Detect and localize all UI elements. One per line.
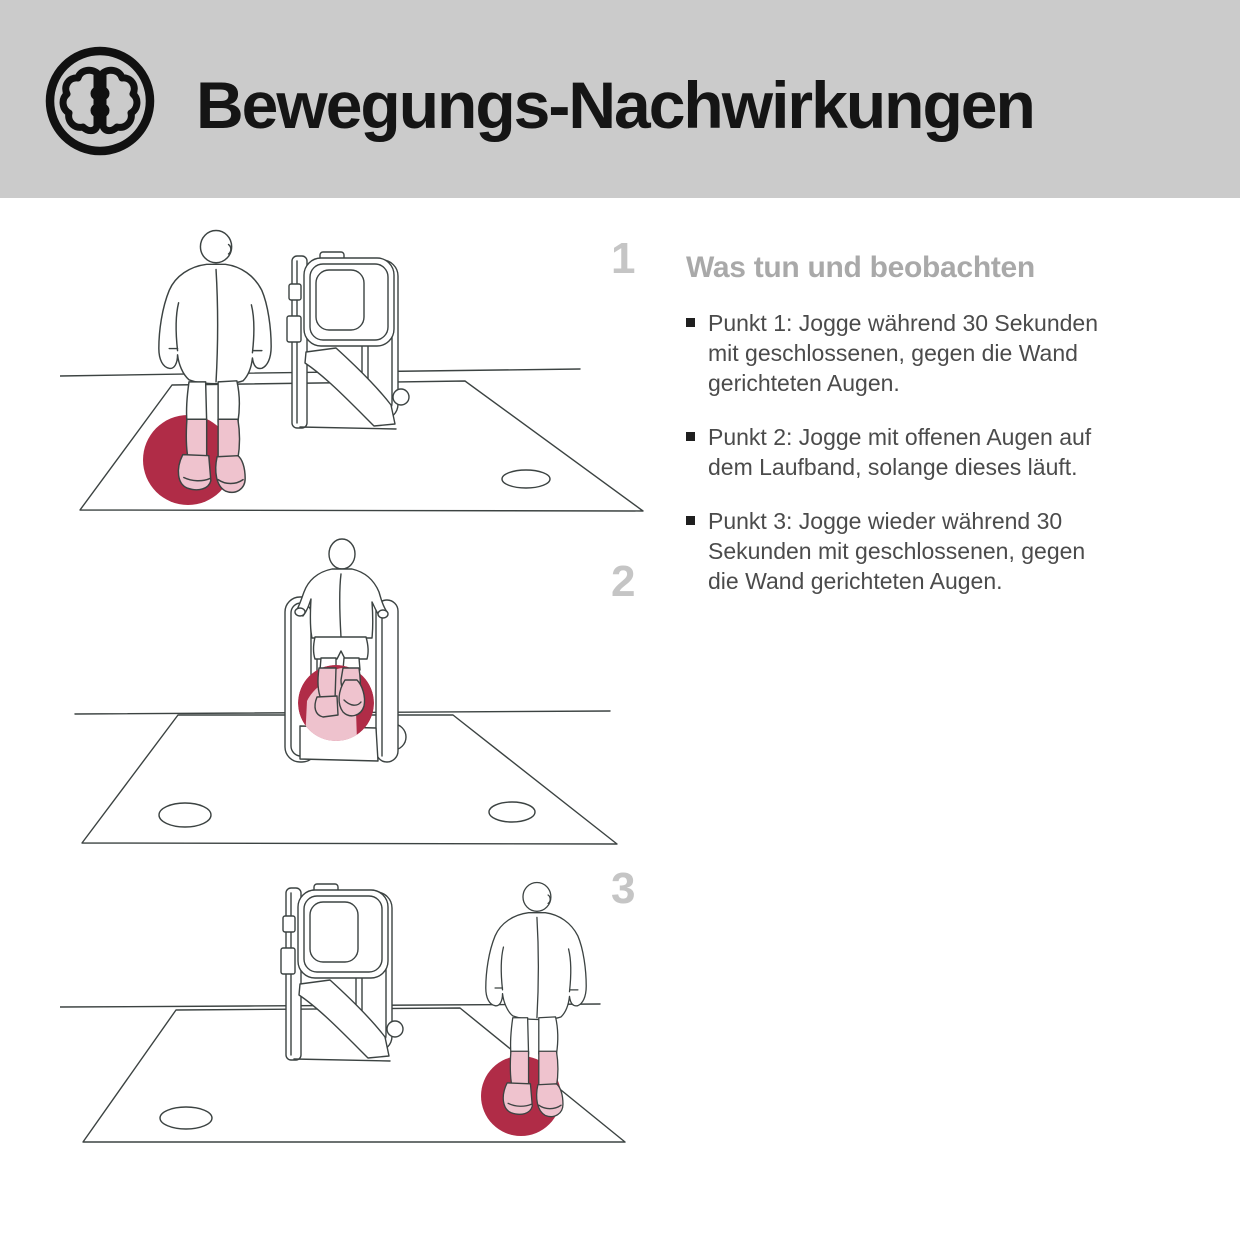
- illustration-panel-1: [60, 218, 660, 548]
- treadmill: [281, 884, 403, 1061]
- illustration-panel-3: [60, 860, 660, 1190]
- bullet-square-icon: [686, 432, 695, 441]
- instructions-heading: Was tun und beobachten: [686, 250, 1156, 286]
- floor-marker: [159, 803, 211, 827]
- panel-number-3: 3: [611, 867, 661, 911]
- bullet-line: Punkt 3: Jogge wieder während 30: [708, 506, 1085, 536]
- brain-icon: [44, 45, 156, 157]
- bullet-line: Sekunden mit geschlossenen, gegen: [708, 536, 1085, 566]
- instructions-column: Was tun und beobachten Punkt 1: Jogge wä…: [686, 250, 1156, 620]
- treadmill: [287, 252, 409, 429]
- list-item: Punkt 3: Jogge wieder während 30 Sekunde…: [686, 506, 1156, 596]
- floor-marker: [160, 1107, 212, 1129]
- instructions-list: Punkt 1: Jogge während 30 Sekunden mit g…: [686, 308, 1156, 596]
- bullet-line: mit geschlossenen, gegen die Wand: [708, 338, 1098, 368]
- page-title: Bewegungs-Nachwirkungen: [196, 72, 1034, 138]
- illustration-panel-2: [60, 530, 660, 860]
- bullet-line: Punkt 2: Jogge mit offenen Augen auf: [708, 422, 1091, 452]
- bullet-text: Punkt 1: Jogge während 30 Sekunden mit g…: [708, 308, 1098, 398]
- bullet-square-icon: [686, 516, 695, 525]
- panel-number-2: 2: [611, 560, 661, 604]
- bullet-square-icon: [686, 318, 695, 327]
- bullet-line: die Wand gerichteten Augen.: [708, 566, 1085, 596]
- floor-marker: [489, 802, 535, 822]
- panel-number-1: 1: [611, 237, 661, 281]
- bullet-line: gerichteten Augen.: [708, 368, 1098, 398]
- bullet-text: Punkt 2: Jogge mit offenen Augen auf dem…: [708, 422, 1091, 482]
- list-item: Punkt 2: Jogge mit offenen Augen auf dem…: [686, 422, 1156, 482]
- floor-marker: [502, 470, 550, 488]
- page-header: Bewegungs-Nachwirkungen: [0, 0, 1240, 198]
- list-item: Punkt 1: Jogge während 30 Sekunden mit g…: [686, 308, 1156, 398]
- bullet-text: Punkt 3: Jogge wieder während 30 Sekunde…: [708, 506, 1085, 596]
- bullet-line: dem Laufband, solange dieses läuft.: [708, 452, 1091, 482]
- bullet-line: Punkt 1: Jogge während 30 Sekunden: [708, 308, 1098, 338]
